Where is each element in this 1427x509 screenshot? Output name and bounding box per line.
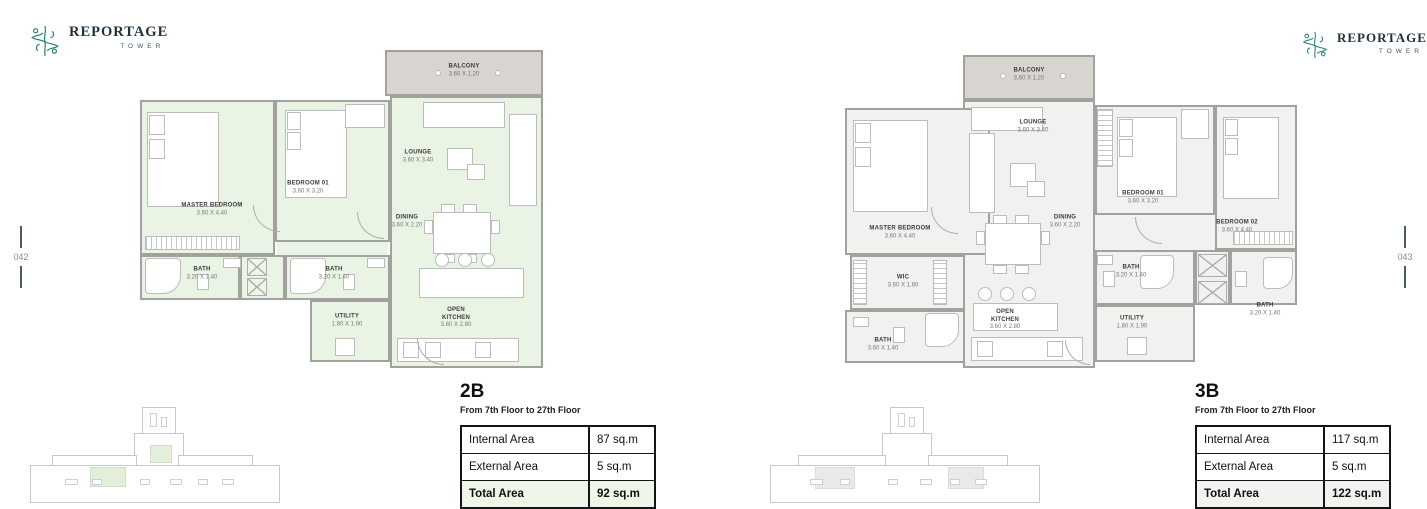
brochure-page: { "brand": { "name": "REPORTAGE", "sub":…: [0, 0, 1427, 503]
room-dims: 1.80 X 1.90: [1117, 323, 1148, 331]
room-name: MASTER BEDROOM: [869, 226, 930, 234]
sink-icon: [223, 258, 241, 268]
pillow-icon: [1119, 139, 1133, 157]
room-label-lounge: LOUNGE 3.60 X 3.40: [1018, 120, 1049, 135]
toilet-icon: [1103, 271, 1115, 287]
washer-icon: [335, 338, 355, 356]
area-value: 87 sq.m: [590, 427, 654, 453]
room-dims: 3.20 X 1.40: [319, 274, 350, 282]
window-mark: [888, 479, 898, 485]
balcony-light-icon: [495, 70, 501, 76]
room-dims: 3.60 X 2.80: [434, 322, 478, 330]
page-number-right: 043: [1397, 252, 1412, 262]
chair-icon: [976, 231, 985, 245]
appliance-icon: [1047, 341, 1063, 357]
washer-icon: [1127, 337, 1147, 355]
room-label-master: MASTER BEDROOM 3.60 X 4.40: [181, 203, 242, 218]
area-label: Total Area: [462, 481, 590, 507]
coffee-table-icon: [1027, 181, 1045, 197]
room-dims: 3.60 X 4.40: [181, 210, 242, 218]
window-mark: [161, 417, 167, 427]
pillow-icon: [149, 139, 165, 159]
appliance-icon: [977, 341, 993, 357]
toilet-icon: [1235, 271, 1247, 287]
window-mark: [950, 479, 960, 485]
table-row-total: Total Area 92 sq.m: [462, 481, 654, 507]
room-label-bedroom-01: BEDROOM 01 3.60 X 3.20: [287, 181, 329, 196]
window-mark: [975, 479, 987, 485]
stool-icon: [1022, 287, 1036, 301]
room-name: UTILITY: [1117, 316, 1148, 324]
chair-icon: [993, 265, 1007, 274]
wardrobe-icon: [933, 260, 947, 305]
balcony-light-icon: [1060, 73, 1066, 79]
stool-icon: [458, 253, 472, 267]
unit-info-2b: 2B From 7th Floor to 27th Floor Internal…: [460, 382, 660, 509]
room-name: OPEN KITCHEN: [434, 307, 478, 322]
room-dims: 3.60 X 1.40: [868, 345, 899, 353]
room-label-bath-master: BATH 3.60 X 1.40: [868, 338, 899, 353]
table-row-total: Total Area 122 sq.m: [1197, 481, 1389, 507]
area-value: 117 sq.m: [1325, 427, 1389, 453]
room-name: OPEN KITCHEN: [983, 309, 1027, 324]
room-name: LOUNGE: [1018, 120, 1049, 128]
sofa-icon: [969, 133, 995, 213]
area-value: 5 sq.m: [590, 454, 654, 480]
brand-logo-right: REPORTAGE TOWER: [1300, 30, 1427, 65]
chair-icon: [1041, 231, 1050, 245]
shaft-icon: [247, 278, 267, 296]
table-row: External Area 5 sq.m: [462, 454, 654, 481]
window-mark: [898, 413, 905, 427]
chair-icon: [993, 215, 1007, 224]
room-dims: 3.60 X 2.80: [983, 324, 1027, 332]
chair-icon: [491, 220, 500, 234]
pillow-icon: [855, 147, 871, 167]
chair-icon: [1015, 265, 1029, 274]
room-name: BALCONY: [1013, 68, 1044, 76]
tower-outline: [882, 433, 932, 469]
room-label-master: MASTER BEDROOM 3.60 X 4.40: [869, 226, 930, 241]
stool-icon: [435, 253, 449, 267]
room-dims: 1.80 X 1.90: [332, 321, 363, 329]
window-mark: [909, 417, 915, 427]
area-table: Internal Area 87 sq.m External Area 5 sq…: [460, 425, 656, 509]
sofa-icon: [423, 102, 505, 128]
pillow-icon: [1225, 119, 1238, 136]
unit-floor-range: From 7th Floor to 27th Floor: [460, 405, 660, 415]
area-label: External Area: [1197, 454, 1325, 480]
stool-icon: [481, 253, 495, 267]
marker-line: [1404, 266, 1406, 288]
pillow-icon: [1225, 138, 1238, 155]
unit-floor-range: From 7th Floor to 27th Floor: [1195, 405, 1395, 415]
room-name: DINING: [392, 215, 423, 223]
room-dims: 3.60 X 3.20: [1122, 198, 1164, 206]
highlight-unit: [150, 445, 172, 463]
chair-icon: [463, 204, 477, 213]
marker-line: [20, 226, 22, 248]
page-marker-left: 042: [8, 226, 34, 288]
area-table: Internal Area 117 sq.m External Area 5 s…: [1195, 425, 1391, 509]
stool-icon: [978, 287, 992, 301]
room-name: BALCONY: [448, 64, 479, 72]
pillow-icon: [855, 123, 871, 143]
chair-icon: [1015, 215, 1029, 224]
room-label-bath-2: BATH 3.20 X 1.40: [319, 267, 350, 282]
room-dims: 3.20 X 1.40: [187, 274, 218, 282]
sink-icon: [1097, 255, 1113, 265]
room-dims: 3.60 X 2.20: [1050, 222, 1081, 230]
room-label-bath-2: BATH 3.20 X 1.40: [1250, 303, 1281, 318]
sofa-icon: [509, 114, 537, 206]
room-dims: 3.20 X 1.40: [1116, 272, 1147, 280]
shaft-icon: [1198, 254, 1227, 277]
window-mark: [920, 479, 932, 485]
room-dims: 3.60 X 4.40: [869, 233, 930, 241]
dining-table-icon: [433, 212, 491, 254]
sink-icon: [367, 258, 385, 268]
marker-line: [20, 266, 22, 288]
highlight-unit: [948, 467, 984, 489]
highlight-unit: [815, 467, 855, 489]
pillow-icon: [149, 115, 165, 135]
table-row: Internal Area 117 sq.m: [1197, 427, 1389, 454]
floor-plan-3b: BALCONY 3.60 X 1.20 MASTER BEDROOM 3.60 …: [835, 55, 1300, 370]
room-name: BEDROOM 01: [287, 181, 329, 189]
brand-subtitle: TOWER: [1337, 48, 1427, 55]
room-name: BATH: [1116, 265, 1147, 273]
window-mark: [65, 479, 78, 485]
room-label-balcony: BALCONY 3.60 X 1.20: [448, 64, 479, 79]
area-label: External Area: [462, 454, 590, 480]
brand-name: REPORTAGE: [1337, 30, 1427, 46]
room-label-balcony: BALCONY 3.60 X 1.20: [1013, 68, 1044, 83]
room-name: BEDROOM 02: [1216, 220, 1258, 228]
wardrobe-icon: [1097, 109, 1113, 167]
window-mark: [140, 479, 150, 485]
reportage-ornament-icon: [28, 24, 62, 63]
room-dims: 3.60 X 4.40: [1216, 227, 1258, 235]
area-value: 122 sq.m: [1325, 481, 1389, 507]
window-mark: [198, 479, 208, 485]
key-plan-2b: [30, 403, 280, 503]
area-value: 5 sq.m: [1325, 454, 1389, 480]
room-label-dining: DINING 3.60 X 2.20: [392, 215, 423, 230]
wardrobe-icon: [145, 236, 240, 250]
room-name: BATH: [1250, 303, 1281, 311]
area-value: 92 sq.m: [590, 481, 654, 507]
room-label-utility: UTILITY 1.80 X 1.90: [332, 314, 363, 329]
room-name: LOUNGE: [403, 150, 434, 158]
room-label-bath-1: BATH 3.20 X 1.40: [1116, 265, 1147, 280]
window-mark: [222, 479, 234, 485]
room-dims: 3.60 X 1.20: [1013, 75, 1044, 83]
dining-table-icon: [985, 223, 1041, 265]
room-dims: 3.60 X 1.80: [888, 282, 919, 290]
area-label: Internal Area: [462, 427, 590, 453]
shaft-icon: [247, 258, 267, 276]
room-name: DINING: [1050, 215, 1081, 223]
room-label-open-kitchen: OPEN KITCHEN 3.60 X 2.80: [434, 307, 478, 330]
appliance-icon: [475, 342, 491, 358]
room-dims: 3.60 X 2.20: [392, 222, 423, 230]
shower-icon: [925, 313, 959, 347]
brand-subtitle: TOWER: [69, 43, 168, 50]
coffee-table-icon: [467, 164, 485, 180]
room-label-utility: UTILITY 1.80 X 1.90: [1117, 316, 1148, 331]
desk-icon: [1181, 109, 1209, 139]
room-label-bedroom-02: BEDROOM 02 3.60 X 4.40: [1216, 220, 1258, 235]
window-mark: [150, 413, 157, 427]
room-label-open-kitchen: OPEN KITCHEN 3.60 X 2.80: [983, 309, 1027, 332]
room-name: WIC: [888, 275, 919, 283]
unit-code: 2B: [460, 382, 660, 401]
desk-icon: [345, 104, 385, 128]
room-dims: 3.60 X 3.20: [287, 188, 329, 196]
table-row: External Area 5 sq.m: [1197, 454, 1389, 481]
window-mark: [810, 479, 823, 485]
pillow-icon: [1119, 119, 1133, 137]
key-plan-3b: [770, 403, 1040, 503]
wardrobe-icon: [853, 260, 867, 305]
room-name: BATH: [319, 267, 350, 275]
unit-info-3b: 3B From 7th Floor to 27th Floor Internal…: [1195, 382, 1395, 509]
stool-icon: [1000, 287, 1014, 301]
room-dims: 3.20 X 1.40: [1250, 310, 1281, 318]
room-label-lounge: LOUNGE 3.60 X 3.40: [403, 150, 434, 165]
table-row: Internal Area 87 sq.m: [462, 427, 654, 454]
room-name: BATH: [187, 267, 218, 275]
balcony-light-icon: [435, 70, 441, 76]
marker-line: [1404, 226, 1406, 248]
window-mark: [170, 479, 182, 485]
chair-icon: [424, 220, 433, 234]
room-name: UTILITY: [332, 314, 363, 322]
room-name: MASTER BEDROOM: [181, 203, 242, 211]
window-mark: [840, 479, 850, 485]
room-dims: 3.60 X 3.40: [1018, 127, 1049, 135]
page-number-left: 042: [13, 252, 28, 262]
room-label-wic: WIC 3.60 X 1.80: [888, 275, 919, 290]
page-marker-right: 043: [1392, 226, 1418, 288]
brand-name: REPORTAGE: [69, 24, 168, 41]
room-dims: 3.60 X 1.20: [448, 71, 479, 79]
sink-icon: [853, 317, 869, 327]
area-label: Internal Area: [1197, 427, 1325, 453]
room-label-bedroom-01: BEDROOM 01 3.60 X 3.20: [1122, 191, 1164, 206]
room-name: BATH: [868, 338, 899, 346]
floor-plan-2b: BALCONY 3.60 X 1.20 MASTER BEDROOM 3.60 …: [135, 50, 545, 370]
shower-icon: [1263, 257, 1293, 289]
room-label-bath-1: BATH 3.20 X 1.40: [187, 267, 218, 282]
room-dims: 3.60 X 3.40: [403, 157, 434, 165]
kitchen-island-icon: [419, 268, 524, 298]
unit-code: 3B: [1195, 382, 1395, 401]
reportage-ornament-icon: [1300, 30, 1330, 65]
shower-icon: [145, 258, 181, 294]
window-mark: [92, 479, 102, 485]
pillow-icon: [287, 132, 301, 150]
shaft-icon: [1198, 281, 1227, 304]
balcony-light-icon: [1000, 73, 1006, 79]
room-label-dining: DINING 3.60 X 2.20: [1050, 215, 1081, 230]
chair-icon: [441, 204, 455, 213]
pillow-icon: [287, 112, 301, 130]
area-label: Total Area: [1197, 481, 1325, 507]
room-name: BEDROOM 01: [1122, 191, 1164, 199]
appliance-icon: [403, 342, 419, 358]
